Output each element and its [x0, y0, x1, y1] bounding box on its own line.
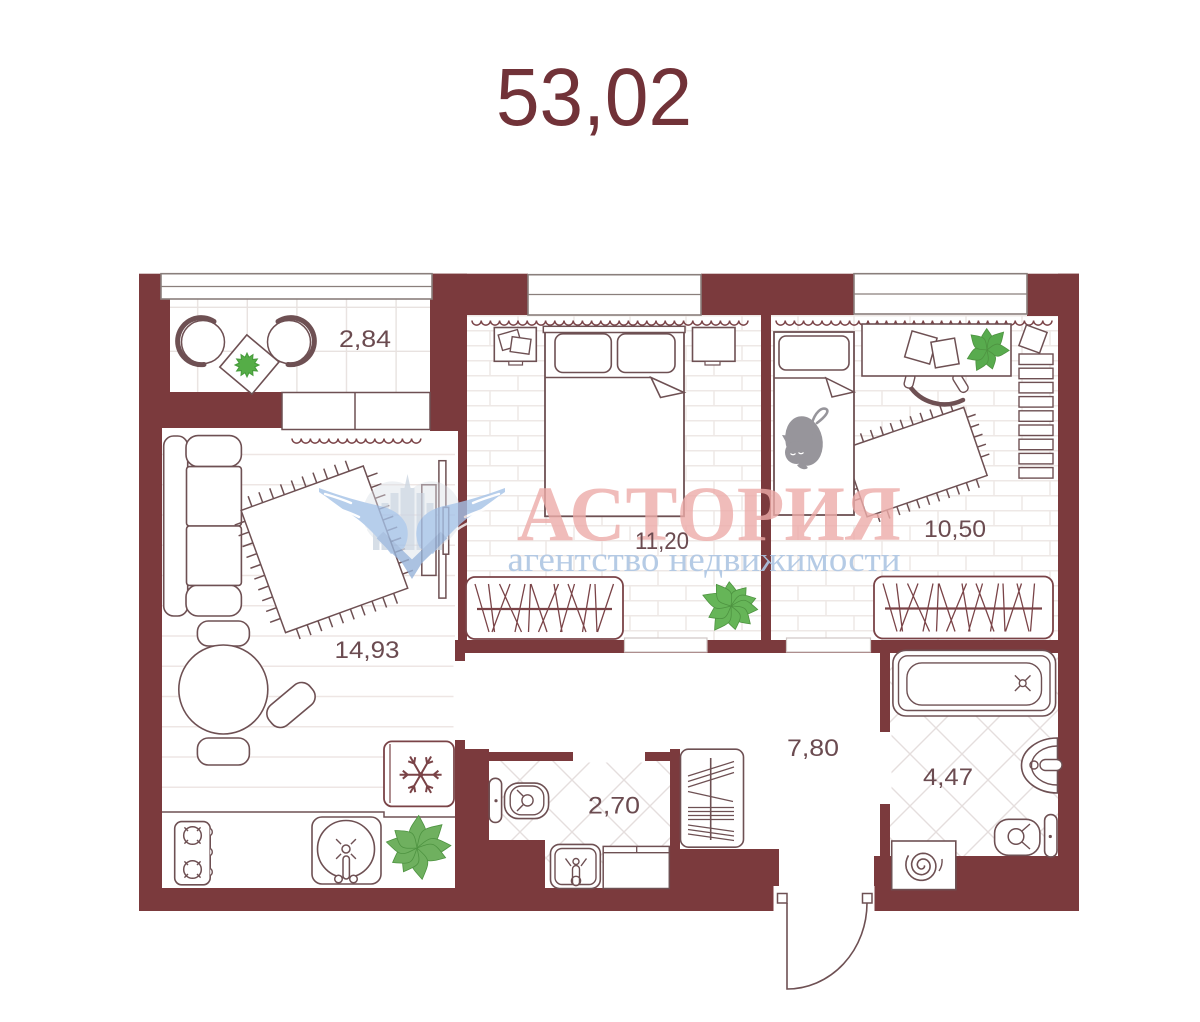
svg-text:2,70: 2,70 — [588, 793, 640, 820]
svg-text:7,80: 7,80 — [787, 735, 839, 762]
svg-text:10,50: 10,50 — [924, 516, 986, 543]
svg-text:4,47: 4,47 — [923, 764, 973, 791]
svg-text:11,20: 11,20 — [635, 528, 689, 555]
svg-text:53,02: 53,02 — [496, 52, 692, 143]
svg-text:14,93: 14,93 — [335, 637, 400, 664]
svg-text:агентство недвижимости: агентство недвижимости — [508, 540, 901, 579]
svg-text:2,84: 2,84 — [339, 326, 391, 353]
